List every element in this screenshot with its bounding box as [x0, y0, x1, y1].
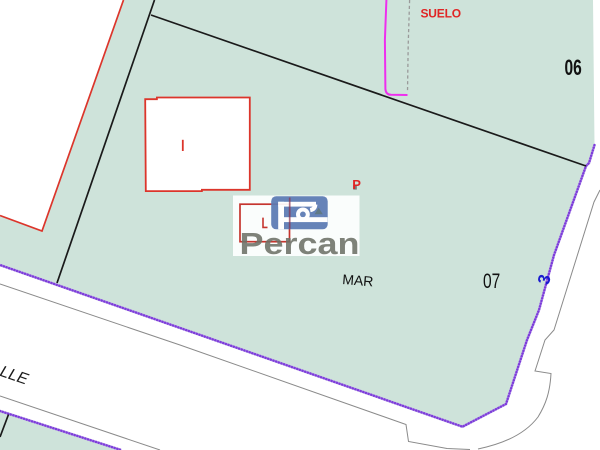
svg-text:06: 06 [565, 57, 582, 81]
svg-text:Percan: Percan [240, 227, 360, 261]
svg-text:SUELO: SUELO [421, 7, 461, 21]
svg-text:P: P [352, 177, 361, 192]
svg-text:MAR: MAR [342, 271, 374, 289]
svg-text:07: 07 [483, 269, 500, 293]
